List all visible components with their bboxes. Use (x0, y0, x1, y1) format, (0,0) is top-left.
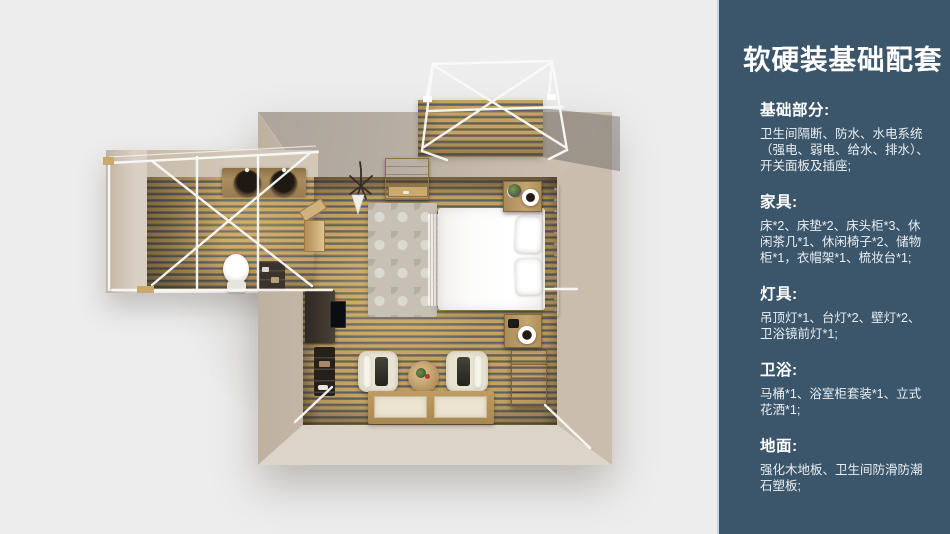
section-heading: 家具: (760, 193, 940, 212)
section-furniture: 家具: 床*2、床垫*2、床头柜*3、休 闲茶几*1、休闲椅子*2、储物 柜*1… (760, 193, 940, 266)
frame-cap (547, 94, 556, 100)
hanging-planter-icon (350, 162, 372, 199)
panel-title: 软硬装基础配套 (743, 44, 942, 76)
section-heading: 卫浴: (760, 361, 940, 380)
info-panel: 软硬装基础配套 基础部分: 卫生间隔断、防水、水电系统 （强电、弱电、给水、排水… (717, 0, 950, 534)
faucet-icon (245, 168, 249, 172)
section-lighting: 灯具: 吊顶灯*1、台灯*2、壁灯*2、 卫浴镜前灯*1; (760, 285, 940, 342)
section-body: 卫生间隔断、防水、水电系统 （强电、弱电、给水、排水）、 开关面板及插座; (760, 126, 938, 174)
macrame-cone-icon (352, 195, 364, 214)
section-bathroom: 卫浴: 马桶*1、浴室柜套装*1、立式 花洒*1; (760, 361, 940, 418)
section-heading: 基础部分: (760, 101, 940, 120)
section-body: 马桶*1、浴室柜套装*1、立式 花洒*1; (760, 386, 938, 418)
section-heading: 灯具: (760, 285, 940, 304)
section-heading: 地面: (760, 437, 940, 456)
frame-cap (423, 96, 432, 102)
canopy-frame-wireframes (0, 0, 718, 534)
section-body: 床*2、床垫*2、床头柜*3、休 闲茶几*1、休闲椅子*2、储物 柜*1，衣帽架… (760, 218, 938, 266)
frame-cap-wood (137, 286, 154, 293)
section-body: 吊顶灯*1、台灯*2、壁灯*2、 卫浴镜前灯*1; (760, 310, 938, 342)
floorplan-render (0, 0, 718, 534)
section-flooring: 地面: 强化木地板、卫生间防滑防潮 石塑板; (760, 437, 940, 494)
section-body: 强化木地板、卫生间防滑防潮 石塑板; (760, 462, 938, 494)
section-basics: 基础部分: 卫生间隔断、防水、水电系统 （强电、弱电、给水、排水）、 开关面板及… (760, 101, 940, 174)
frame-cap-wood (103, 157, 114, 165)
faucet-icon (282, 168, 286, 172)
